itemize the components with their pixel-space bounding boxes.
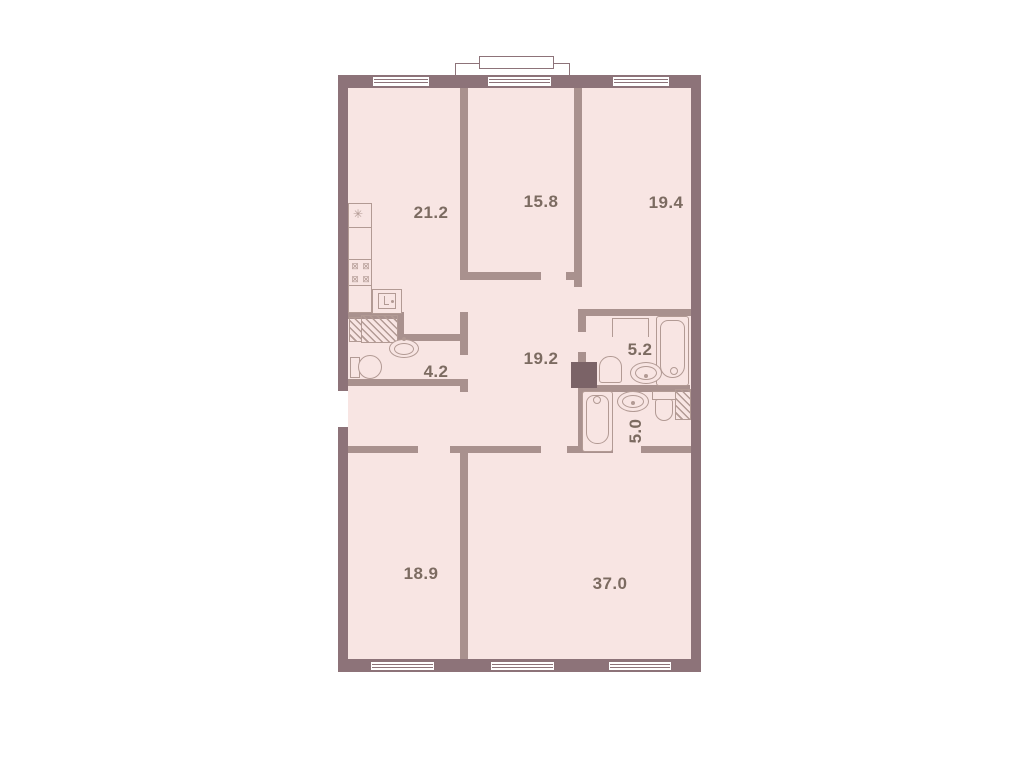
window-bottom-right [608, 661, 672, 671]
wall-exterior-left-upper [338, 75, 348, 391]
ventilation-shaft [571, 362, 597, 388]
wall-bottom-rooms-divider [460, 453, 468, 659]
wall-bathroom52-west-upper [578, 316, 586, 332]
towel-rail-icon [612, 318, 649, 337]
wall-bathroom42-south [348, 379, 468, 386]
wall-exterior-right [691, 75, 701, 672]
room-area-label-bathroom-left: 4.2 [424, 362, 449, 382]
bathtub-drain-icon [670, 367, 678, 375]
window-top-middle [487, 76, 552, 87]
room-area-label-kitchen-living: 21.2 [414, 203, 449, 223]
sink-drain-icon [631, 401, 635, 405]
toilet-icon [599, 356, 622, 383]
wall-hall-south-middle [450, 446, 541, 453]
floor-plan: ✳ ⊠⊠⊠⊠ 21.2 15.8 19.4 4.2 19.2 5.2 5.0 1… [0, 0, 1023, 768]
room-area-label-bedroom-bottom-left: 18.9 [404, 564, 439, 584]
wall-hall-south-left [348, 446, 418, 453]
sink-bowl-icon [394, 343, 414, 355]
wall-bathroom50-south-right [641, 446, 691, 453]
wall-exterior-left-lower [338, 427, 348, 672]
wall-bathroom42-east [460, 312, 468, 355]
window-bottom-left [370, 661, 435, 671]
room-area-label-hallway: 19.2 [524, 349, 559, 369]
room-area-label-bedroom-middle: 15.8 [524, 192, 559, 212]
duct-hatch-icon [675, 389, 691, 420]
sink-drain-icon [644, 374, 648, 378]
kitchen-faucet-icon [384, 296, 389, 305]
extractor-symbol-icon: ✳ [353, 208, 363, 220]
toilet-bowl-icon [358, 355, 382, 379]
toilet-bowl-icon [655, 399, 673, 421]
bathtub-drain-icon [593, 396, 601, 404]
laundry-hatch-icon [361, 315, 398, 343]
room-area-label-bathroom-upper-right: 5.2 [628, 340, 653, 360]
room-area-label-bathroom-lower-right: 5.0 [626, 419, 646, 444]
balcony-outline-inner [479, 56, 554, 69]
window-top-left [372, 76, 430, 87]
room-area-label-living-room: 37.0 [593, 574, 628, 594]
kitchen-sink-drain-icon [391, 300, 394, 303]
room-area-label-bedroom-right: 19.4 [649, 193, 684, 213]
wall-bedrooms-divider [574, 88, 582, 287]
sink-tap-icon [402, 337, 406, 341]
wall-bedroom-right-south [578, 309, 691, 316]
wall-bedroom-middle-south-left [460, 272, 541, 280]
window-top-right [612, 76, 670, 87]
window-bottom-middle [490, 661, 555, 671]
stove-burners-icon: ⊠⊠⊠⊠ [350, 261, 371, 284]
wall-kitchen-bedroom-divider [460, 88, 468, 280]
